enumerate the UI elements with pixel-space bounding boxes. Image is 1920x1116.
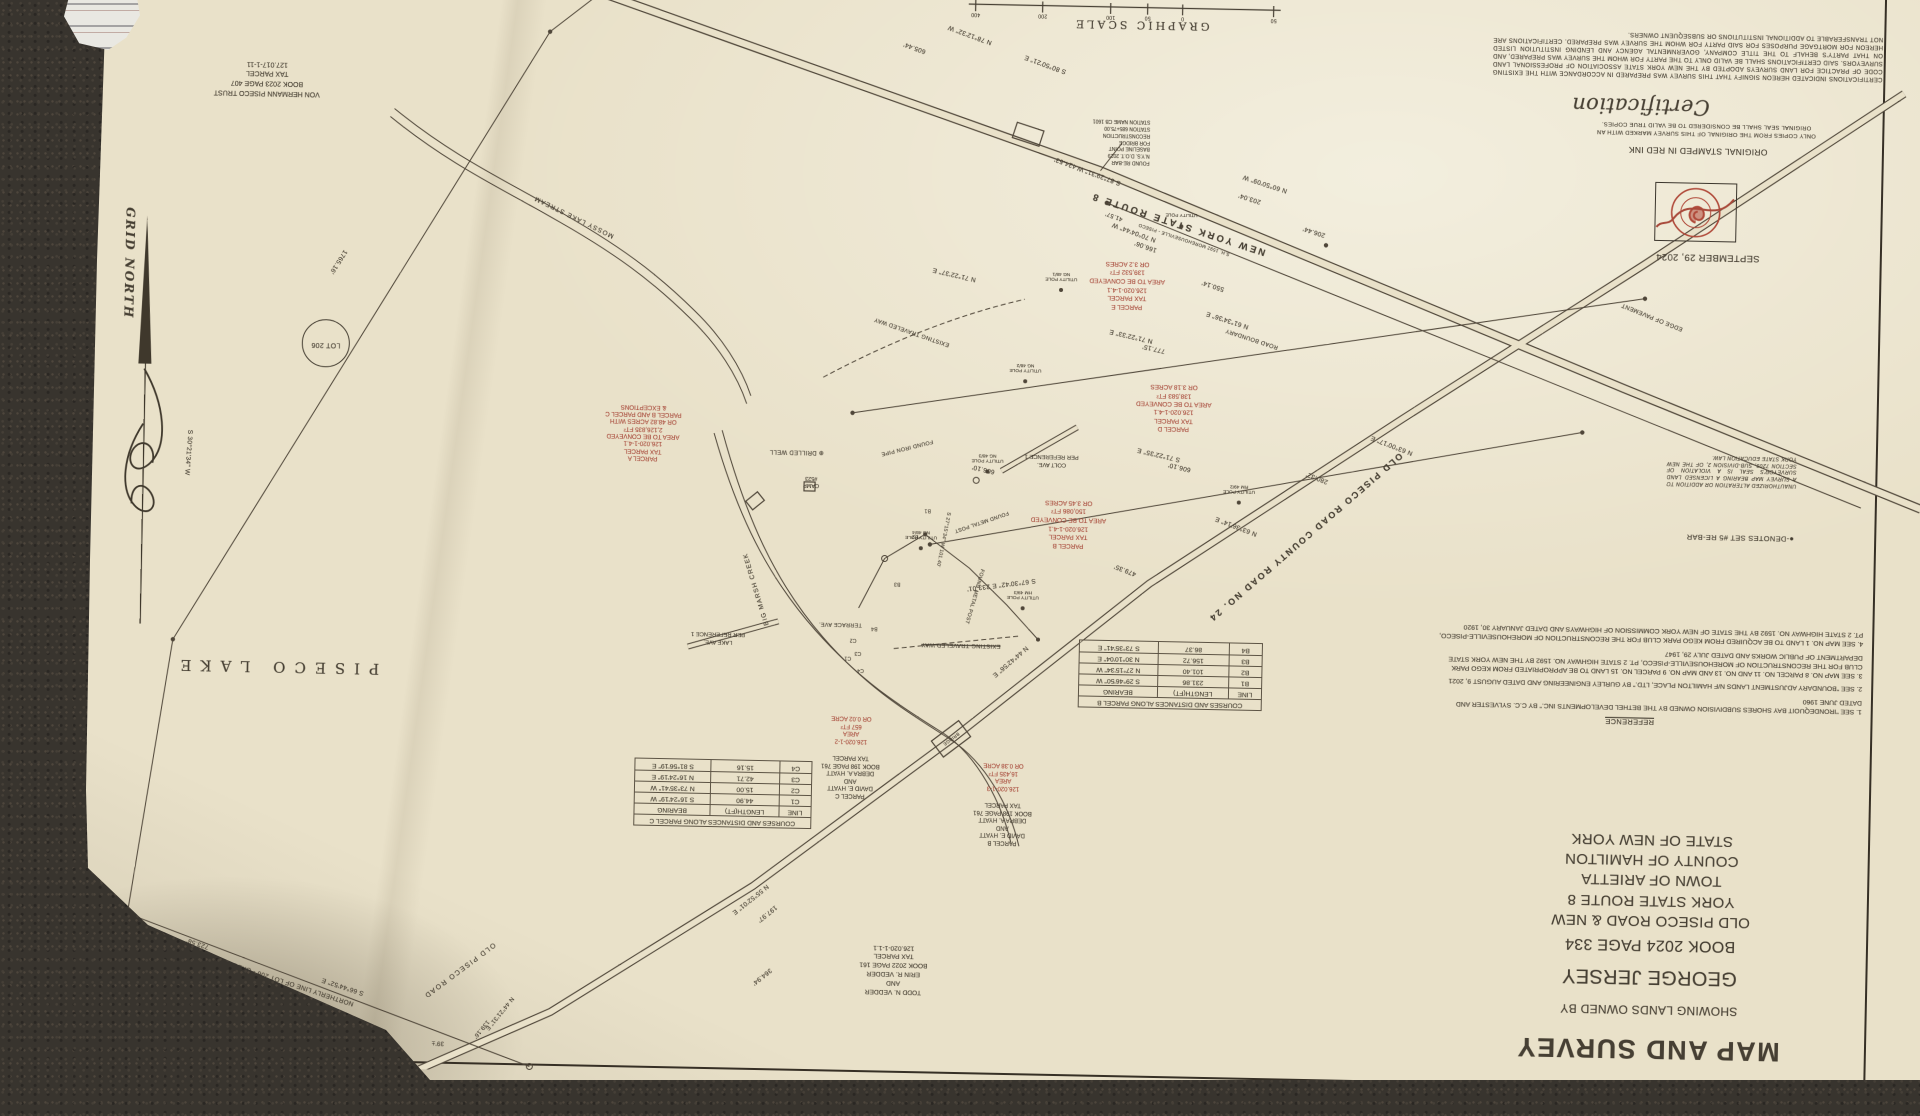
col-header: LINE: [779, 806, 811, 818]
cell: C4: [780, 761, 812, 773]
bearing-label: 39'±: [432, 1038, 444, 1046]
town-line: TOWN OF ARIETTA: [1581, 869, 1722, 891]
traveled-way-label-2: EXISTING TRAVELED WAY: [921, 639, 1000, 648]
found-rebar-callout: FOUND RE-BAR N.Y.S. D.O.T. 2019 BASELINE…: [1092, 117, 1151, 165]
lot1-deed-block: BOOK 2022 PAGE 161 TAX PARCEL 126.020-1-…: [267, 1040, 331, 1065]
set-rebar-monuments: [125, 21, 1652, 946]
piseco-lake-label: PISECO LAKE: [171, 654, 379, 678]
lake-ave-label: LAKE AVE. PER REFERENCE 1: [691, 629, 745, 645]
scale-tick-label: 400: [971, 11, 980, 18]
cell: 42.71: [711, 771, 780, 784]
photo-of-survey-map: { "colors":{"carpet":"#38342e","paper":"…: [0, 0, 1920, 1080]
hyatt-parcel-c-block: PARCEL C DAVID E. HYATT AND DEBRA A. HYA…: [821, 753, 880, 799]
col-header: BEARING: [634, 803, 710, 815]
county-line: COUNTY OF HAMILTON STATE OF NEW YORK: [1550, 828, 1754, 871]
utility-pole-label: UTILITY POLE: [1009, 367, 1041, 373]
owner-name: GEORGE JERSEY: [1562, 962, 1738, 992]
cell: 15.16: [711, 760, 780, 773]
utility-pole-label: UTILITY POLE: [1045, 276, 1077, 282]
cell: 156.72: [1158, 653, 1229, 666]
cell: 15.00: [711, 782, 780, 795]
line-marker: B4: [871, 625, 878, 632]
cell: 231.86: [1157, 676, 1228, 689]
col-header: LINE: [1228, 688, 1261, 700]
cell: S 29°46'50" W: [1079, 674, 1158, 687]
hyatt-parcel-b-area: 126.020-1-3 AREA 16,435 FT² OR 0.38 ACRE: [983, 761, 1024, 792]
bridge-symbols: [931, 121, 1044, 759]
cell: 44.90: [710, 794, 779, 807]
surveyor-stamp-box: [1654, 182, 1737, 243]
people-of-nys-block: PEOPLE OF THE STATE OF NEW YORK TAX PARC…: [122, 988, 238, 1080]
title-block: MAP AND SURVEY SHOWING LANDS OWNED BY GE…: [1444, 1090, 1849, 1098]
parcel-b-course-table: COURSES AND DISTANCES ALONG PARCEL B LIN…: [1078, 640, 1263, 711]
certification-body: CERTIFICATIONS INDICATED HEREON SIGNIFY …: [1492, 26, 1883, 82]
col-header: LENGTH(FT): [710, 805, 779, 817]
cell: B4: [1229, 643, 1262, 655]
scale-tick-label: 50: [1144, 14, 1150, 21]
parcel-d-area-note: PARCEL D TAX PARCEL 126.020-1-4.1 AREA T…: [1136, 382, 1212, 433]
grid-north-label: GRID NORTH: [119, 207, 137, 319]
reference-notes: 1. SEE "IRONDEQUOIT BAY SHORES SUBDIVISI…: [1432, 621, 1864, 715]
line-marker: C3: [854, 650, 861, 657]
location-line: OLD PISECO ROAD & NEW YORK STATE ROUTE 8: [1549, 889, 1753, 932]
cell: S 81°56'19" E: [635, 758, 711, 771]
mossy-stream-line: [385, 116, 753, 403]
parcel-b-area-note: PARCEL B TAX PARCEL 126.020-1-4.1 AREA T…: [1030, 496, 1106, 549]
hyatt-parcel-b-block: PARCEL B DAVID E. HYATT AND DEBRA A. HYA…: [973, 800, 1032, 846]
mid-boundary-line: [930, 419, 1582, 557]
von-hermann-owner-block: VON HERMANN PISECO TRUST BOOK 2023 PAGE …: [214, 57, 321, 98]
west-boundary-line: [124, 24, 550, 1067]
cell: S 16°24'19" W: [634, 792, 710, 805]
scale-tick-label: 100: [1106, 14, 1115, 21]
line-marker: B1: [924, 507, 931, 514]
col-header: LENGTH(FT): [1157, 687, 1228, 699]
line-marker: C2: [849, 637, 856, 644]
pole-id: NG 48/2: [1017, 362, 1035, 367]
col-header: BEARING: [1078, 685, 1157, 697]
utility-pole-label: UTILITY POLE: [1007, 594, 1039, 600]
scale-tick-label: 50: [1270, 17, 1276, 24]
terrace-ave-label: TERRACE AVE.: [819, 620, 862, 628]
red-seal: [1655, 183, 1736, 242]
cell: N 73°35'41" W: [634, 781, 710, 794]
north-boundary-line: [853, 283, 1645, 429]
cell: B1: [1228, 677, 1261, 689]
line-marker: C1: [844, 654, 851, 661]
certification-heading: Certification: [1572, 91, 1710, 121]
deed-reference: BOOK 2024 PAGE 334: [1565, 932, 1736, 956]
bearing-label: S 86°44'52" W 29.00': [60, 979, 122, 1006]
cell: N 30°10'04" E: [1079, 652, 1158, 665]
graphic-scale-bar: [969, 0, 1281, 17]
cell: B3: [1229, 655, 1262, 667]
cell: N 16°24'19" E: [635, 770, 711, 783]
line-marker: C4: [857, 667, 864, 674]
utility-pole-label: UTILITY POLE: [1223, 488, 1255, 494]
parcel-e-area-note: PARCEL E TAX PARCEL 126.020-1-4.1 AREA T…: [1089, 258, 1165, 311]
reference-heading: REFERENCE: [1605, 716, 1654, 727]
survey-paper-sheet: MAP AND SURVEY SHOWING LANDS OWNED BY GE…: [0, 0, 1920, 1080]
line-marker: B2: [912, 533, 919, 540]
scale-tick-label: 0: [1181, 15, 1184, 22]
cell: 101.40: [1158, 664, 1229, 677]
colt-ave-label: COLT AVE. PER REFERENCE 1: [1024, 452, 1078, 468]
pole-id: RM 49/2: [1230, 483, 1248, 488]
parcel-c-course-table: COURSES AND DISTANCES ALONG PARCEL C LIN…: [633, 758, 812, 829]
scale-tick-label: 200: [1038, 12, 1047, 19]
law-note: UNAUTHORIZED ALTERATION OR ADDITION TO A…: [1666, 452, 1797, 488]
line-marker: B3: [894, 580, 901, 587]
graphic-scale-label: GRAPHIC SCALE: [1073, 16, 1210, 33]
cell: C1: [779, 795, 811, 807]
camp-label: CAMP #523: [803, 474, 819, 488]
pole-id: HM 49/3: [1014, 589, 1032, 594]
pole-id: NG 48/3: [979, 452, 997, 457]
utility-pole-label: UTILITY POLE: [905, 534, 937, 540]
cell: B2: [1229, 666, 1262, 678]
vedder-owner-block: TODD N. VEDDER AND ERIN R. VEDDER BOOK 2…: [859, 941, 928, 996]
drilled-well-label: ⊕ DRILLED WELL: [770, 446, 824, 455]
cell: 86.37: [1158, 642, 1229, 655]
parcel-a-area-note: PARCEL A TAX PARCEL 126.020-1-4.1 AREA T…: [604, 403, 682, 463]
cell: C2: [779, 784, 811, 796]
map-content-rotated: MAP AND SURVEY SHOWING LANDS OWNED BY GE…: [0, 0, 1920, 1099]
pole-id: NG 48/1: [1052, 271, 1070, 276]
cell: N 27°15'34" W: [1079, 663, 1158, 676]
reference-note: 3. SEE MAP NO. 8 PARCEL NO. 11 AND NO. 1…: [1432, 644, 1862, 679]
utility-pole-label: UTILITY POLE: [1166, 212, 1198, 218]
hyatt-parcel-c-area: 126.020-1-2 AREA 657 FT² OR 0.02 ACRE: [831, 713, 872, 744]
cell: S 73°35'41" E: [1079, 640, 1158, 653]
certification-date: SEPTEMBER 29, 2024: [1656, 250, 1760, 264]
cell: C3: [779, 773, 811, 785]
